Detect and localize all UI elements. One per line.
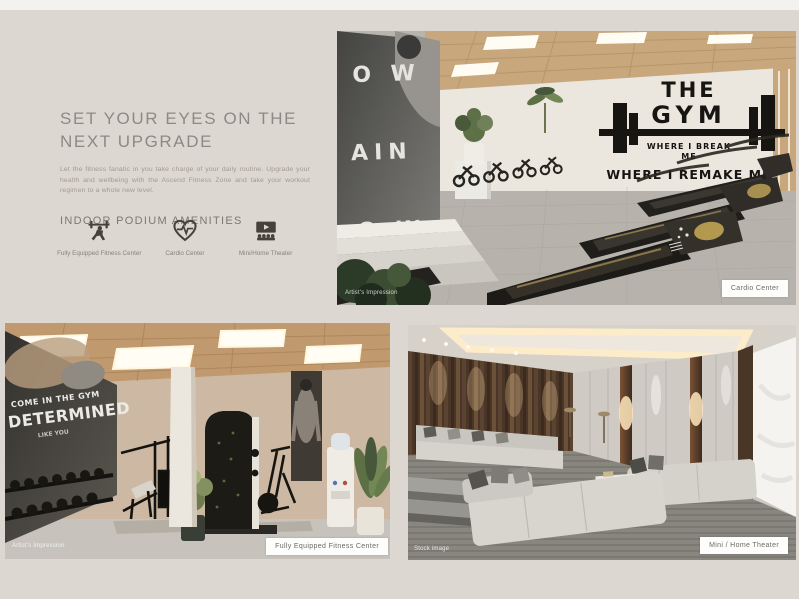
water-cooler (327, 433, 354, 527)
amenity-label: Fully Equipped Fitness Center (57, 250, 141, 257)
page-title-line1: SET YOUR EYES ON THE (60, 107, 312, 130)
athlete-mural-panel (291, 371, 322, 481)
photo-label-home-theater: Mini / Home Theater (700, 537, 788, 554)
fitness-center-render: COME IN THE GYM DETERMINED LIKE YOU (5, 323, 390, 559)
sconce-light (689, 392, 703, 426)
photo-label-cardio-center: Cardio Center (722, 280, 788, 297)
cardio-center-photo: THE GYM WHERE I BREAK ME WHERE I REMAKE … (337, 31, 796, 305)
svg-text:THE: THE (661, 78, 716, 102)
svg-text:GYM: GYM (651, 101, 726, 129)
column (169, 367, 197, 527)
photo-label-fitness-center: Fully Equipped Fitness Center (266, 538, 388, 555)
heart-pulse-icon (172, 218, 198, 244)
amenity-cardio-center: Cardio Center (147, 218, 224, 257)
page-title-line2: NEXT UPGRADE (60, 130, 312, 153)
home-theater-render (408, 325, 796, 560)
amenity-fitness-center: Fully Equipped Fitness Center (52, 218, 147, 257)
sconce-light (619, 396, 633, 430)
amenities-row: Fully Equipped Fitness Center Cardio Cen… (52, 218, 308, 257)
home-theater-photo: Stock image Mini / Home Theater (408, 325, 796, 560)
page-top-strip (0, 0, 799, 10)
intro-section: SET YOUR EYES ON THE NEXT UPGRADE Let th… (60, 96, 312, 236)
svg-text:WHERE I BREAK: WHERE I BREAK (647, 142, 731, 151)
svg-text:AIN: AIN (351, 139, 413, 166)
photo-caption: Artist's Impression (345, 290, 398, 296)
intro-body-text: Let the fitness fanatic in you take char… (60, 165, 310, 196)
amenity-label: Cardio Center (165, 250, 204, 257)
barbell-lifter-icon (86, 218, 112, 244)
page-title: SET YOUR EYES ON THE NEXT UPGRADE (60, 107, 312, 153)
fitness-center-photo: COME IN THE GYM DETERMINED LIKE YOU (5, 323, 390, 559)
cardio-center-render: THE GYM WHERE I BREAK ME WHERE I REMAKE … (337, 31, 796, 305)
amenity-label: Mini/Home Theater (239, 250, 292, 257)
photo-caption: Artist's Impression (12, 543, 65, 549)
photo-caption: Stock image (414, 546, 449, 552)
projection-screen (753, 337, 796, 517)
svg-text:O W: O W (352, 61, 421, 88)
home-theater-icon (253, 218, 279, 244)
amenity-home-theater: Mini/Home Theater (223, 218, 308, 257)
